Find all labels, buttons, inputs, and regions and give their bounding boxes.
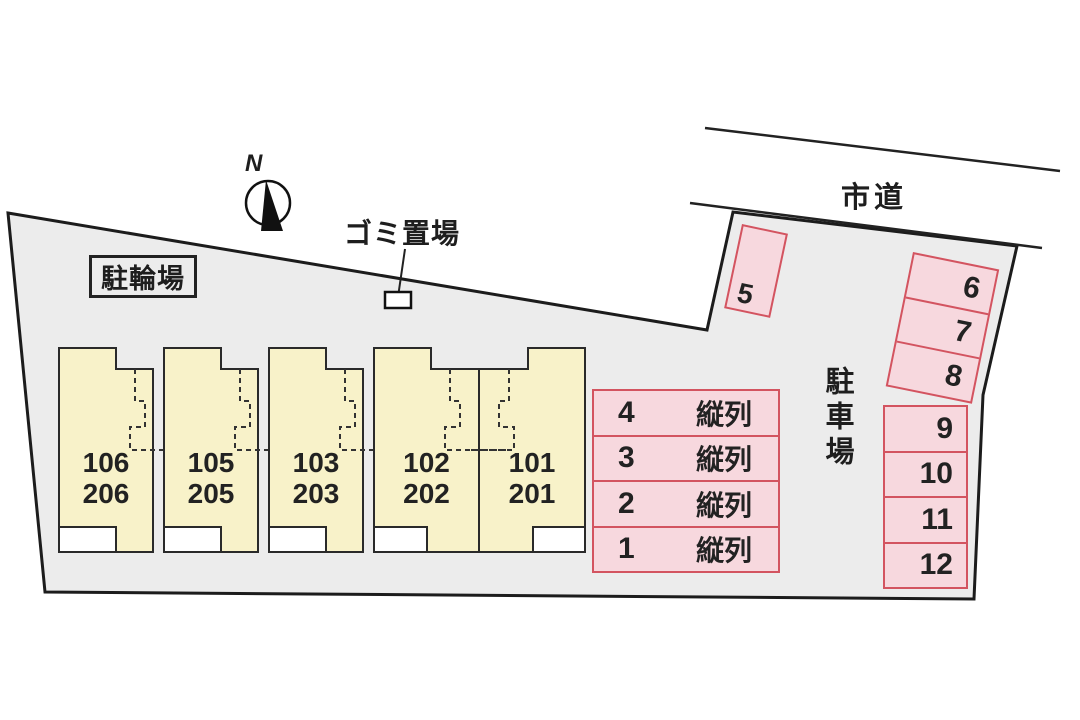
- unit-label-106-206: 106 206: [59, 447, 153, 509]
- parking-lot-label: 駐車場: [816, 366, 858, 471]
- unit-number-1f: 103: [269, 447, 363, 478]
- right-parking-block: 9 10 11 12: [883, 405, 968, 589]
- space-type-label: 縦列: [696, 484, 752, 524]
- space-number: 4: [618, 396, 635, 430]
- bicycle-parking-label: 駐輪場: [101, 257, 185, 296]
- space-type-label: 縦列: [696, 393, 752, 433]
- unit-label-102-202: 102 202: [374, 447, 479, 509]
- unit-number-1f: 106: [59, 447, 153, 478]
- unit-number-2f: 201: [479, 478, 585, 509]
- parking-space-11: 11: [885, 498, 966, 544]
- road-edge-upper: [705, 128, 1060, 171]
- compass-icon: [246, 180, 290, 231]
- space-number: 11: [921, 503, 953, 537]
- parking-space-2: 2 縦列: [594, 482, 778, 528]
- compass-north-label: N: [245, 150, 262, 178]
- space-number: 12: [920, 548, 953, 582]
- parking-space-1: 1 縦列: [594, 528, 778, 572]
- space-number: 2: [618, 487, 635, 521]
- space-number: 6: [960, 270, 983, 307]
- entrance-notch-101: [533, 527, 585, 552]
- space-number: 3: [618, 441, 635, 475]
- entrance-notch-105: [164, 527, 221, 552]
- space-number: 7: [951, 314, 974, 351]
- city-road-label: 市道: [841, 174, 907, 216]
- unit-number-2f: 206: [59, 478, 153, 509]
- garbage-station-marker: [385, 292, 411, 308]
- entrance-notch-106: [59, 527, 116, 552]
- unit-number-2f: 203: [269, 478, 363, 509]
- space-number: 5: [734, 277, 756, 312]
- space-type-label: 縦列: [696, 438, 752, 478]
- bicycle-parking-label-box: 駐輪場: [89, 255, 197, 298]
- space-number: 1: [618, 532, 635, 566]
- tandem-parking-block: 4 縦列 3 縦列 2 縦列 1 縦列: [592, 389, 780, 573]
- parking-space-9: 9: [885, 407, 966, 453]
- site-plan: N 駐輪場 ゴミ置場 市道 駐車場 106 206 105 205 103 20…: [0, 0, 1080, 720]
- space-number: 9: [936, 412, 953, 446]
- garbage-area-label: ゴミ置場: [344, 212, 460, 252]
- space-type-label: 縦列: [696, 529, 752, 569]
- space-number: 10: [920, 457, 953, 491]
- parking-space-10: 10: [885, 453, 966, 499]
- unit-number-1f: 105: [164, 447, 258, 478]
- entrance-notch-102: [374, 527, 427, 552]
- unit-label-105-205: 105 205: [164, 447, 258, 509]
- parking-space-4: 4 縦列: [594, 391, 778, 437]
- unit-number-1f: 101: [479, 447, 585, 478]
- unit-label-103-203: 103 203: [269, 447, 363, 509]
- compass-needle: [261, 180, 283, 231]
- unit-number-2f: 202: [374, 478, 479, 509]
- parking-space-3: 3 縦列: [594, 437, 778, 483]
- unit-number-2f: 205: [164, 478, 258, 509]
- space-number: 8: [942, 358, 965, 395]
- unit-label-101-201: 101 201: [479, 447, 585, 509]
- unit-number-1f: 102: [374, 447, 479, 478]
- entrance-notch-103: [269, 527, 326, 552]
- parking-space-12: 12: [885, 544, 966, 588]
